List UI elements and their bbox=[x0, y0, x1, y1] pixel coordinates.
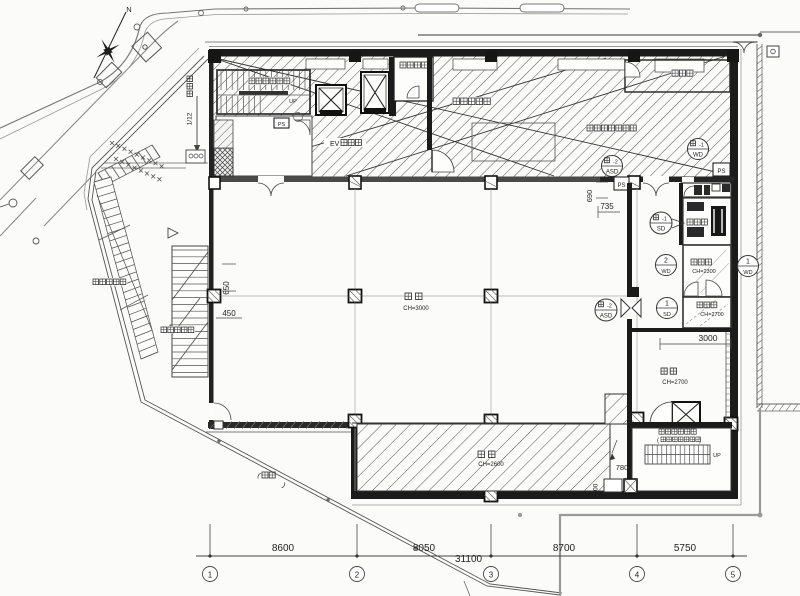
svg-text:4: 4 bbox=[635, 571, 640, 580]
svg-text:SD: SD bbox=[663, 312, 671, 318]
svg-text:PS: PS bbox=[717, 169, 725, 175]
svg-text:3000: 3000 bbox=[699, 333, 718, 343]
svg-text:WD: WD bbox=[693, 153, 704, 159]
svg-text:WD: WD bbox=[661, 269, 670, 275]
svg-text:300: 300 bbox=[593, 483, 600, 494]
svg-text:2: 2 bbox=[664, 258, 668, 265]
svg-text:780: 780 bbox=[616, 463, 629, 472]
svg-text:CH=2700: CH=2700 bbox=[700, 312, 723, 318]
svg-text:CH=3000: CH=3000 bbox=[403, 306, 429, 312]
svg-text:PS: PS bbox=[617, 183, 625, 189]
svg-text:735: 735 bbox=[600, 202, 614, 211]
svg-text:450: 450 bbox=[222, 309, 236, 318]
svg-text:N: N bbox=[126, 5, 131, 14]
svg-text:1: 1 bbox=[665, 301, 669, 308]
svg-text:CH=2300: CH=2300 bbox=[692, 269, 715, 275]
svg-text:1: 1 bbox=[208, 571, 213, 580]
svg-text:WD: WD bbox=[743, 270, 752, 276]
svg-text:8700: 8700 bbox=[553, 543, 576, 554]
svg-text:690: 690 bbox=[585, 190, 594, 203]
svg-text:31100: 31100 bbox=[455, 554, 483, 565]
svg-text:2: 2 bbox=[355, 571, 360, 580]
svg-text:EV: EV bbox=[330, 141, 340, 148]
svg-text:CH=2600: CH=2600 bbox=[478, 462, 504, 468]
svg-text:-1: -1 bbox=[699, 142, 704, 148]
svg-text:PS: PS bbox=[278, 122, 286, 128]
svg-text:650: 650 bbox=[222, 281, 231, 295]
svg-text:8050: 8050 bbox=[413, 543, 436, 554]
svg-text:CH=2700: CH=2700 bbox=[662, 380, 688, 386]
svg-text:ASD: ASD bbox=[600, 314, 613, 320]
svg-text:5750: 5750 bbox=[674, 543, 697, 554]
svg-text:UP: UP bbox=[289, 99, 297, 105]
svg-text:-1: -1 bbox=[662, 216, 667, 222]
svg-text:5: 5 bbox=[731, 571, 736, 580]
svg-text:8600: 8600 bbox=[272, 543, 295, 554]
svg-text:(: ( bbox=[657, 438, 659, 444]
svg-text:-2: -2 bbox=[613, 159, 618, 165]
svg-text:3: 3 bbox=[489, 571, 494, 580]
svg-text:1: 1 bbox=[746, 259, 750, 266]
svg-text:ASD: ASD bbox=[606, 170, 619, 176]
svg-text:-2: -2 bbox=[607, 303, 612, 309]
svg-text:1/12: 1/12 bbox=[187, 112, 194, 125]
svg-text:UP: UP bbox=[713, 453, 721, 459]
svg-text:): ) bbox=[699, 438, 701, 444]
svg-text:SD: SD bbox=[657, 227, 666, 233]
